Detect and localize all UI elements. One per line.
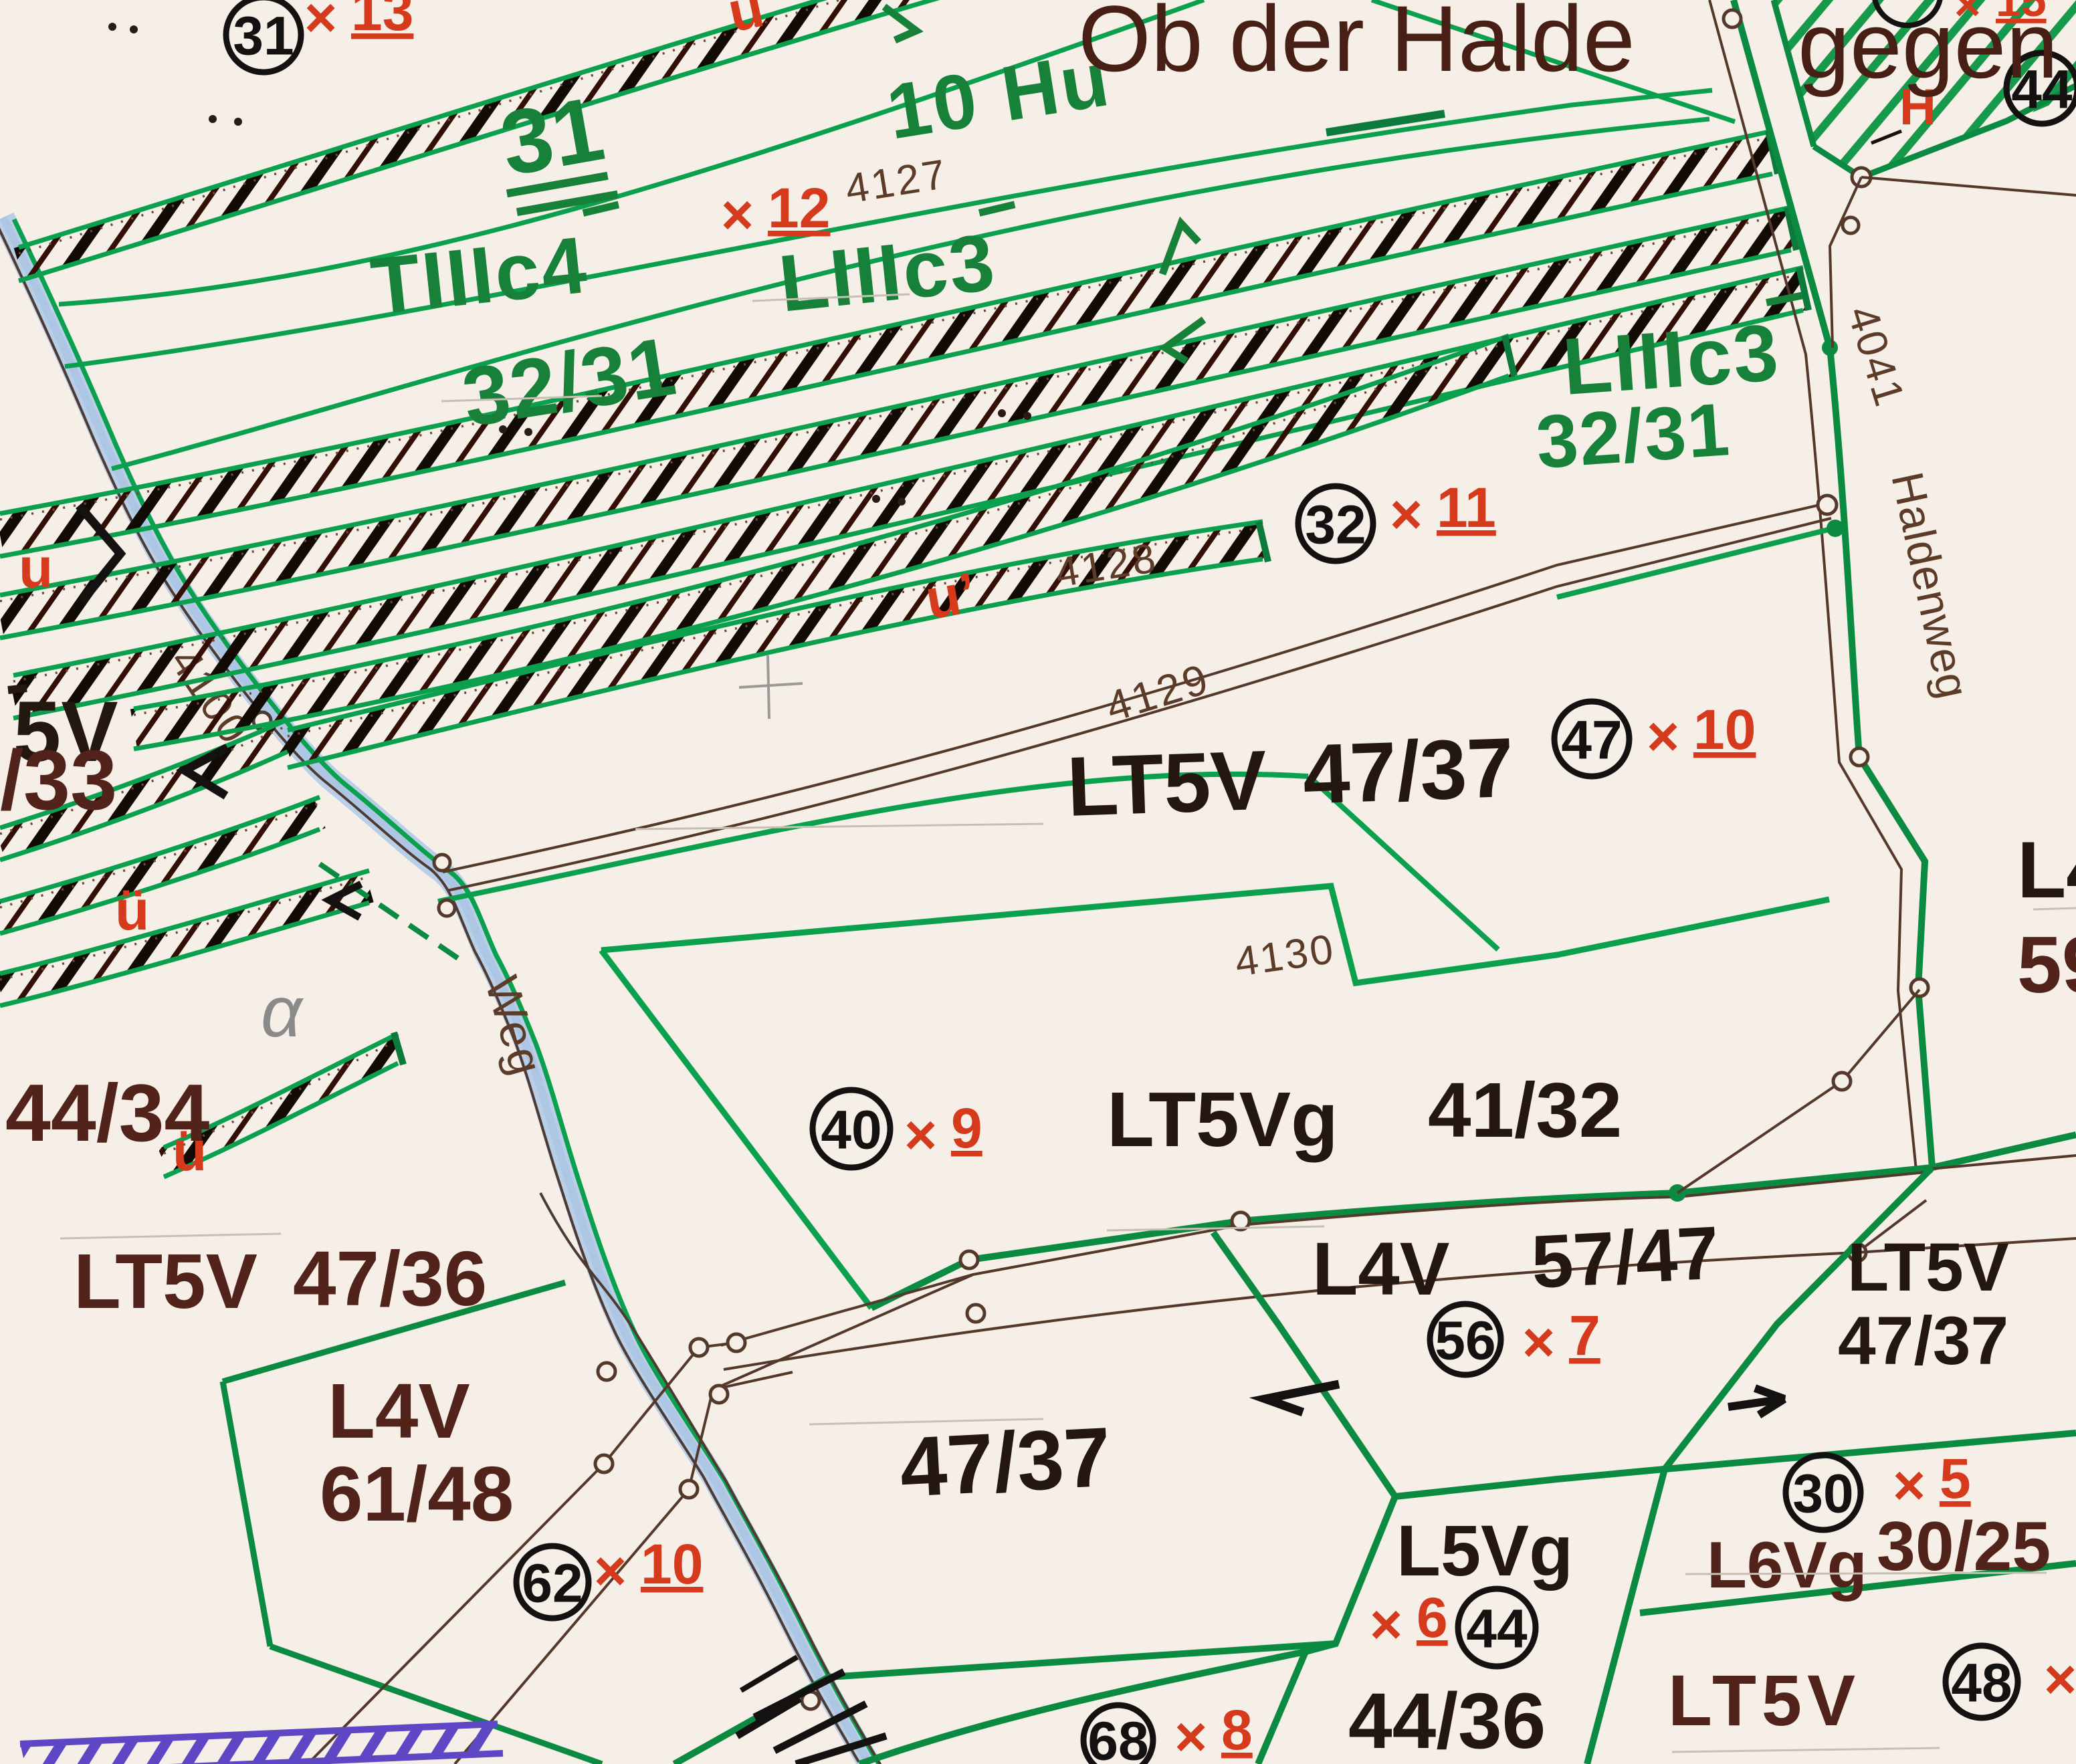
svg-text:44: 44	[1466, 1599, 1528, 1660]
svg-text:×: ×	[304, 0, 337, 49]
svg-text:62: 62	[522, 1553, 583, 1614]
svg-text:59: 59	[2017, 920, 2076, 1010]
svg-text:L4: L4	[2017, 825, 2076, 915]
svg-text:×: ×	[904, 1103, 937, 1166]
svg-text:32: 32	[1305, 495, 1366, 556]
svg-text:10: 10	[641, 1533, 703, 1595]
svg-text:11: 11	[1437, 476, 1496, 539]
svg-text:L5Vg: L5Vg	[1396, 1510, 1573, 1591]
svg-text:×: ×	[1390, 483, 1423, 546]
svg-text:68: 68	[1087, 1711, 1148, 1764]
svg-text:12: 12	[768, 177, 830, 239]
svg-text:61/48: 61/48	[320, 1450, 514, 1537]
svg-text:×: ×	[594, 1539, 627, 1602]
svg-text:10: 10	[1693, 698, 1756, 761]
svg-text:47/37: 47/37	[1838, 1303, 2008, 1379]
svg-text:8: 8	[1221, 1698, 1253, 1761]
svg-text:×: ×	[1647, 705, 1679, 768]
svg-text:LT5V: LT5V	[1847, 1229, 2009, 1305]
svg-text:5: 5	[1940, 1447, 1971, 1510]
svg-text:44/34: 44/34	[5, 1067, 209, 1158]
svg-text:α: α	[261, 971, 304, 1052]
svg-text:LT5V: LT5V	[1668, 1660, 1861, 1741]
svg-text:/33: /33	[0, 733, 117, 827]
svg-text:×: ×	[1522, 1311, 1555, 1373]
svg-text:LT5V: LT5V	[1065, 733, 1268, 834]
svg-text:13: 13	[351, 0, 413, 42]
svg-text:×: ×	[721, 183, 754, 246]
svg-text:57/47: 57/47	[1530, 1210, 1721, 1303]
svg-text:L4V: L4V	[328, 1367, 470, 1454]
svg-text:31: 31	[233, 6, 294, 67]
svg-text:×: ×	[1370, 1593, 1403, 1656]
svg-text:48: 48	[1951, 1653, 2012, 1714]
svg-text:9: 9	[951, 1097, 982, 1160]
svg-text:L4V: L4V	[1312, 1227, 1449, 1311]
svg-text:LT5V: LT5V	[74, 1238, 257, 1325]
svg-text:44/36: 44/36	[1348, 1677, 1546, 1764]
svg-text:u: u	[19, 536, 53, 599]
svg-text:Ob der Halde: Ob der Halde	[1078, 0, 1635, 91]
svg-text:47/36: 47/36	[293, 1235, 487, 1322]
svg-text:47: 47	[1561, 710, 1622, 771]
svg-text:32/31: 32/31	[1534, 387, 1733, 484]
svg-text:40: 40	[821, 1100, 881, 1161]
svg-text:47/37: 47/37	[1302, 720, 1516, 822]
svg-text:30: 30	[1792, 1464, 1853, 1525]
svg-text:6: 6	[1417, 1586, 1448, 1649]
svg-text:L6Vg: L6Vg	[1707, 1528, 1867, 1602]
svg-text:LT5Vg: LT5Vg	[1107, 1076, 1338, 1163]
svg-text:ü: ü	[115, 879, 149, 942]
svg-text:56: 56	[1435, 1311, 1495, 1371]
svg-text:41/32: 41/32	[1428, 1067, 1622, 1153]
svg-text:×: ×	[2044, 1648, 2076, 1711]
svg-text:47/37: 47/37	[898, 1410, 1113, 1515]
svg-text:×: ×	[1174, 1705, 1207, 1764]
svg-text:×: ×	[1893, 1454, 1926, 1517]
svg-text:gegen: gegen	[1798, 0, 2058, 98]
svg-text:7: 7	[1569, 1304, 1600, 1367]
